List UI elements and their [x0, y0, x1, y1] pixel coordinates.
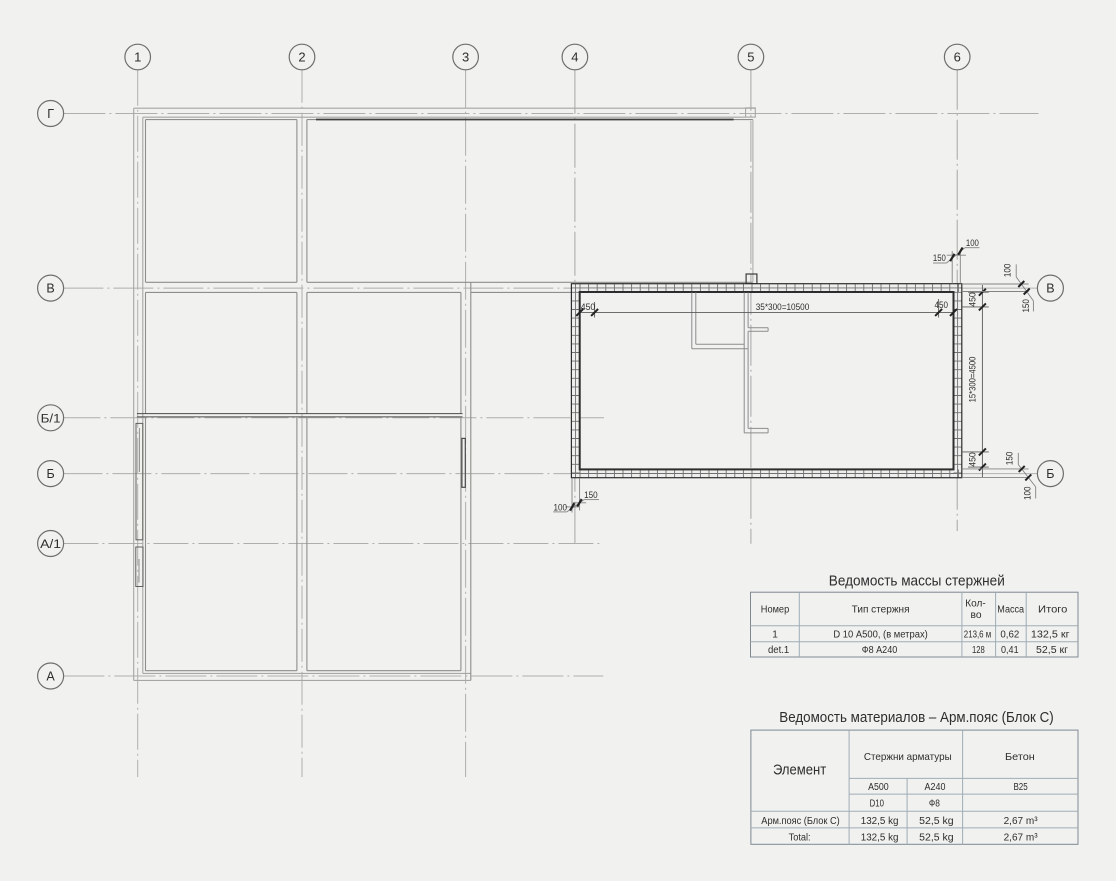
svg-text:Масса: Масса: [997, 604, 1024, 615]
svg-text:132,5 kg: 132,5 kg: [861, 816, 899, 827]
svg-text:Тип стержня: Тип стержня: [852, 604, 910, 615]
svg-text:150: 150: [933, 253, 946, 263]
svg-text:2: 2: [298, 50, 305, 65]
svg-text:В: В: [46, 282, 54, 296]
svg-text:2,67 m³: 2,67 m³: [1004, 816, 1039, 827]
svg-text:0,62: 0,62: [1000, 629, 1019, 640]
svg-text:Ведомость массы стержней: Ведомость массы стержней: [829, 573, 1005, 589]
svg-text:2,67 m³: 2,67 m³: [1004, 832, 1039, 843]
svg-text:В: В: [1046, 282, 1054, 296]
svg-text:128: 128: [972, 645, 985, 656]
svg-text:Total:: Total:: [789, 832, 811, 843]
svg-text:Стержни арматуры: Стержни арматуры: [864, 751, 952, 763]
svg-text:6: 6: [954, 50, 961, 65]
svg-text:Б/1: Б/1: [41, 413, 61, 425]
svg-text:D10: D10: [870, 799, 885, 810]
svg-text:Кол-: Кол-: [965, 599, 985, 610]
svg-text:213,6 м: 213,6 м: [964, 629, 991, 640]
svg-text:Бетон: Бетон: [1005, 751, 1035, 763]
svg-text:5: 5: [747, 50, 754, 65]
svg-text:Б: Б: [46, 467, 54, 481]
svg-text:52,5 kg: 52,5 kg: [919, 832, 954, 843]
svg-text:det.1: det.1: [768, 645, 790, 656]
svg-text:А500: А500: [868, 782, 889, 793]
svg-text:Итого: Итого: [1038, 604, 1068, 615]
svg-text:132,5 kg: 132,5 kg: [861, 832, 899, 843]
svg-text:D 10 А500, (в метрах): D 10 А500, (в метрах): [833, 629, 927, 640]
svg-text:Б: Б: [1046, 467, 1054, 481]
svg-text:Ведомость материалов – Арм.поя: Ведомость материалов – Арм.пояс (Блок С): [779, 710, 1053, 726]
svg-text:52,5 кг: 52,5 кг: [1036, 645, 1068, 656]
svg-text:В25: В25: [1013, 782, 1028, 793]
svg-text:132,5 кг: 132,5 кг: [1031, 629, 1070, 640]
svg-text:100: 100: [1022, 486, 1032, 500]
svg-text:450: 450: [935, 300, 949, 310]
svg-text:Ф8 А240: Ф8 А240: [862, 645, 898, 656]
svg-text:15*300=4500: 15*300=4500: [967, 357, 977, 403]
svg-text:4: 4: [571, 50, 578, 65]
svg-text:150: 150: [1021, 299, 1031, 313]
svg-text:450: 450: [967, 292, 977, 307]
svg-text:100: 100: [554, 503, 568, 513]
svg-text:Арм.пояс (Блок С): Арм.пояс (Блок С): [761, 816, 839, 827]
svg-text:Г: Г: [47, 107, 54, 121]
svg-text:1: 1: [134, 50, 141, 65]
svg-text:Номер: Номер: [761, 604, 790, 615]
svg-text:35*300=10500: 35*300=10500: [756, 302, 810, 312]
svg-text:450: 450: [581, 302, 596, 312]
svg-text:во: во: [971, 610, 982, 621]
svg-text:А/1: А/1: [40, 539, 61, 551]
svg-text:52,5 kg: 52,5 kg: [919, 816, 954, 827]
svg-text:3: 3: [462, 50, 469, 65]
svg-text:150: 150: [584, 490, 598, 500]
svg-text:100: 100: [1002, 264, 1012, 278]
svg-text:450: 450: [967, 452, 977, 467]
svg-text:0,41: 0,41: [1001, 645, 1019, 656]
svg-text:Ф8: Ф8: [929, 799, 940, 810]
svg-text:150: 150: [1005, 452, 1015, 466]
svg-text:А: А: [46, 670, 55, 684]
svg-text:Элемент: Элемент: [773, 763, 827, 779]
svg-text:А240: А240: [925, 782, 946, 793]
svg-text:100: 100: [966, 238, 979, 248]
svg-text:1: 1: [772, 629, 778, 640]
